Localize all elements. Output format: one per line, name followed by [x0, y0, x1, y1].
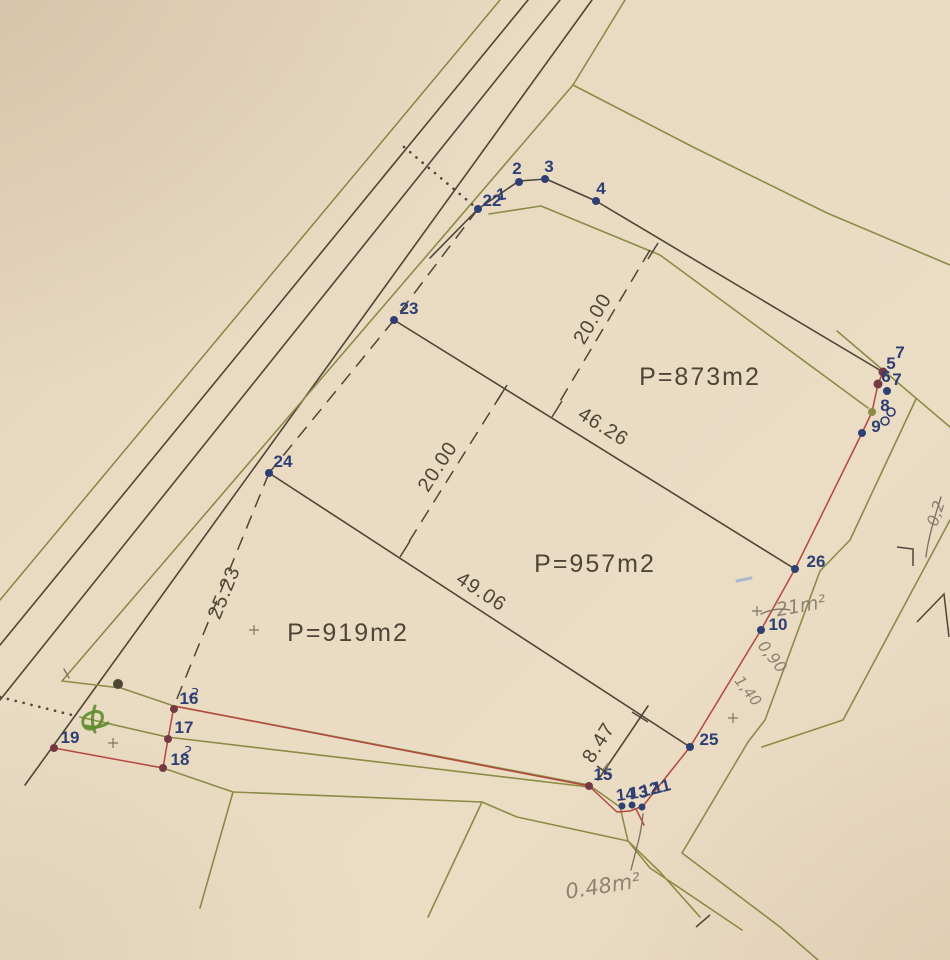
drawing-text: P=873m2P=957m2P=919m220.0020.0046.2649.0…: [61, 157, 949, 904]
point-number-label: 19: [61, 728, 80, 747]
survey-point-dot: [585, 782, 593, 790]
survey-point-dot: [113, 679, 123, 689]
dotted-line: [404, 147, 474, 206]
handwritten-note: 1,40: [731, 672, 766, 709]
pencil-leader-line: [631, 814, 643, 870]
dimension-label: 20.00: [414, 438, 462, 496]
old-boundary-line: [573, 85, 950, 265]
point-number-label: 3: [544, 157, 553, 176]
dashed-division-line: [405, 393, 502, 548]
point-number-label: 26: [807, 552, 826, 571]
point-number-label: 1: [495, 184, 507, 204]
old-boundary-line: [682, 399, 916, 960]
survey-point-dot: [639, 804, 646, 811]
dimension-tick: [632, 712, 648, 722]
dimension-label: 25.23: [204, 563, 245, 622]
dotted-line: [0, 697, 76, 716]
handwritten-note: 0.48m²: [564, 868, 643, 904]
dimension-tick: [696, 915, 710, 927]
parcel-area-label: P=957m2: [534, 550, 656, 578]
parcel-boundary-line: [0, 0, 528, 645]
survey-point-dot: [474, 205, 482, 213]
surveyor-cross-mark: [752, 606, 762, 616]
boundary-and-road-lines: [0, 0, 950, 960]
point-number-label: 25: [700, 730, 719, 749]
blue-pen-mark: [737, 578, 751, 581]
old-boundary-line: [200, 792, 233, 908]
survey-point-dots: [50, 175, 895, 811]
division-dashed-lines: [174, 209, 650, 706]
survey-point-dot: [791, 565, 799, 573]
handwritten-note: 4: [602, 761, 610, 775]
survey-point-dot: [170, 705, 178, 713]
point-number-label: 9: [871, 417, 880, 436]
old-boundary-line: [0, 0, 500, 600]
handwritten-note: 2: [181, 743, 193, 761]
dimension-label: 49.06: [452, 568, 510, 616]
parcel-boundary-line: [269, 473, 690, 747]
dashed-division-line: [269, 320, 394, 473]
old-boundary-line: [428, 802, 482, 917]
point-number-label: 7: [892, 370, 901, 389]
handwritten-note: 0,90: [754, 637, 791, 677]
dimension-label: 46.26: [574, 403, 632, 451]
neighbour-feature-mark: [917, 594, 949, 637]
point-number-label: 11: [651, 775, 673, 798]
survey-point-dot: [858, 429, 866, 437]
survey-traverse-line: [174, 372, 883, 812]
point-number-label: 23: [400, 299, 419, 318]
plan-svg: P=873m2P=957m2P=919m220.0020.0046.2649.0…: [0, 0, 950, 960]
point-number-label: 17: [175, 718, 194, 737]
old-boundary-line: [80, 717, 589, 787]
survey-point-dot: [164, 735, 172, 743]
point-number-label: 2: [512, 159, 521, 178]
point-number-label: 24: [274, 452, 293, 471]
surveyor-cross-mark: [728, 713, 738, 723]
surveyor-cross-mark: [249, 625, 259, 635]
survey-point-dot: [159, 764, 167, 772]
survey-point-dot: [686, 743, 694, 751]
neighbour-feature-mark: [897, 547, 913, 566]
point-number-label: 6: [881, 367, 890, 386]
survey-point-dot: [592, 197, 600, 205]
survey-point-dot: [757, 626, 765, 634]
point-number-label: 8: [880, 396, 889, 415]
scanned-plan-photo: P=873m2P=957m2P=919m220.0020.0046.2649.0…: [0, 0, 950, 960]
dashed-division-line: [556, 250, 650, 408]
survey-point-dot: [265, 469, 273, 477]
handwritten-note: 21m²: [774, 591, 828, 621]
parcel-area-label: P=919m2: [287, 619, 409, 647]
handwritten-note: 0,2: [923, 498, 949, 528]
survey-point-dot: [390, 316, 398, 324]
survey-point-dot: [515, 178, 523, 186]
survey-point-dot: [868, 408, 876, 416]
green-pen-scribble: [86, 723, 108, 727]
survey-point-dot: [50, 744, 58, 752]
dimension-tick: [552, 401, 562, 417]
point-number-label: 7: [895, 343, 904, 362]
point-number-label: 4: [596, 179, 606, 198]
dimension-tick: [400, 541, 410, 557]
surveyor-cross-mark: [108, 738, 118, 748]
open-point-symbol: [881, 417, 889, 425]
survey-point-dot: [541, 175, 549, 183]
dimension-label: 8.47: [578, 719, 619, 767]
survey-point-dot: [883, 387, 891, 395]
parcel-area-label: P=873m2: [639, 363, 761, 391]
old-boundary-line: [762, 520, 950, 747]
